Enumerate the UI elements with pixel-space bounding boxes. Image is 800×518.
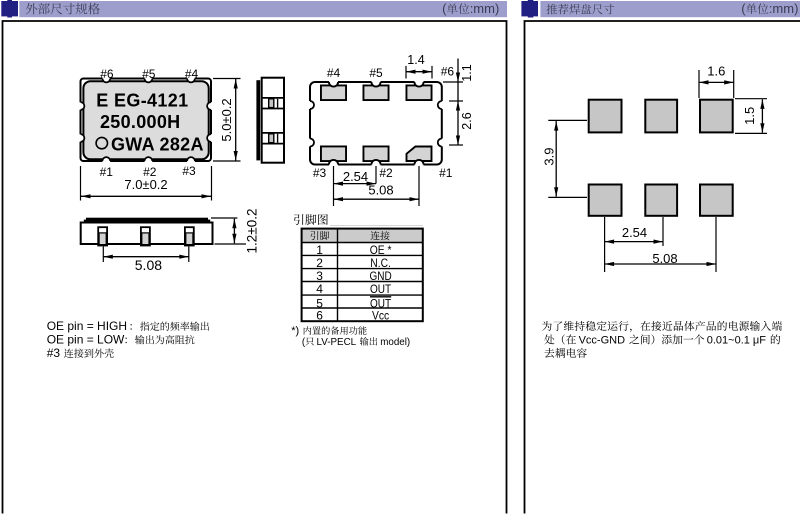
svg-text:(: ( (442, 1, 447, 16)
svg-text:#6: #6 (441, 65, 455, 79)
svg-text:5.08: 5.08 (368, 182, 393, 197)
svg-text:GWA 282A: GWA 282A (111, 134, 204, 154)
svg-text:#1: #1 (100, 165, 114, 179)
svg-text:5.08: 5.08 (135, 257, 162, 273)
svg-text:LV-PECL: LV-PECL (317, 337, 357, 348)
svg-text:2.54: 2.54 (622, 225, 647, 240)
svg-text:0.01~0.1 μF: 0.01~0.1 μF (707, 335, 767, 347)
svg-text:#1: #1 (439, 166, 453, 180)
svg-text:Vcc: Vcc (372, 309, 389, 323)
svg-text:1.2±0.2: 1.2±0.2 (245, 209, 260, 254)
svg-text:E EG-4121: E EG-4121 (96, 91, 188, 111)
svg-text:3: 3 (316, 269, 323, 283)
svg-text:*): *) (291, 325, 299, 337)
svg-text:5.0±0.2: 5.0±0.2 (219, 98, 234, 141)
svg-text:1: 1 (316, 243, 323, 257)
svg-text:model): model) (380, 337, 410, 348)
svg-text:#5: #5 (142, 67, 156, 81)
svg-text:OE pin = HIGH: OE pin = HIGH (47, 319, 127, 333)
svg-text:(: ( (741, 1, 746, 16)
svg-text:OE pin = LOW: OE pin = LOW (47, 333, 125, 347)
svg-text:#4: #4 (327, 66, 341, 80)
svg-text:7.0±0.2: 7.0±0.2 (124, 177, 167, 192)
svg-text:#6: #6 (100, 67, 114, 81)
svg-text:4: 4 (316, 282, 323, 296)
svg-text:1.4: 1.4 (407, 53, 424, 67)
svg-text::mm): :mm) (470, 1, 500, 16)
svg-text:#2: #2 (379, 166, 393, 180)
svg-text:#5: #5 (369, 66, 383, 80)
svg-text:#3: #3 (47, 346, 61, 360)
svg-text:GND: GND (370, 269, 392, 283)
svg-text:#3: #3 (182, 164, 196, 178)
svg-text:N.C.: N.C. (370, 256, 391, 270)
svg-text:250.000H: 250.000H (100, 112, 180, 132)
svg-text:Vcc-GND: Vcc-GND (579, 335, 626, 347)
svg-text:2: 2 (316, 256, 323, 270)
svg-text:#4: #4 (185, 67, 199, 81)
svg-text:2.6: 2.6 (460, 112, 474, 129)
svg-text:OE *: OE * (370, 243, 392, 257)
svg-text:1.6: 1.6 (707, 64, 725, 79)
svg-text:6: 6 (316, 309, 323, 323)
svg-text:5.08: 5.08 (652, 251, 677, 266)
svg-text:1.5: 1.5 (742, 107, 757, 125)
svg-text:(: ( (302, 337, 306, 348)
svg-text:3.9: 3.9 (542, 148, 557, 166)
svg-text:OUT: OUT (370, 282, 392, 296)
svg-text:#3: #3 (313, 166, 327, 180)
svg-text:1.1: 1.1 (460, 64, 474, 81)
svg-text::mm): :mm) (769, 1, 799, 16)
svg-text:2.54: 2.54 (343, 169, 368, 184)
